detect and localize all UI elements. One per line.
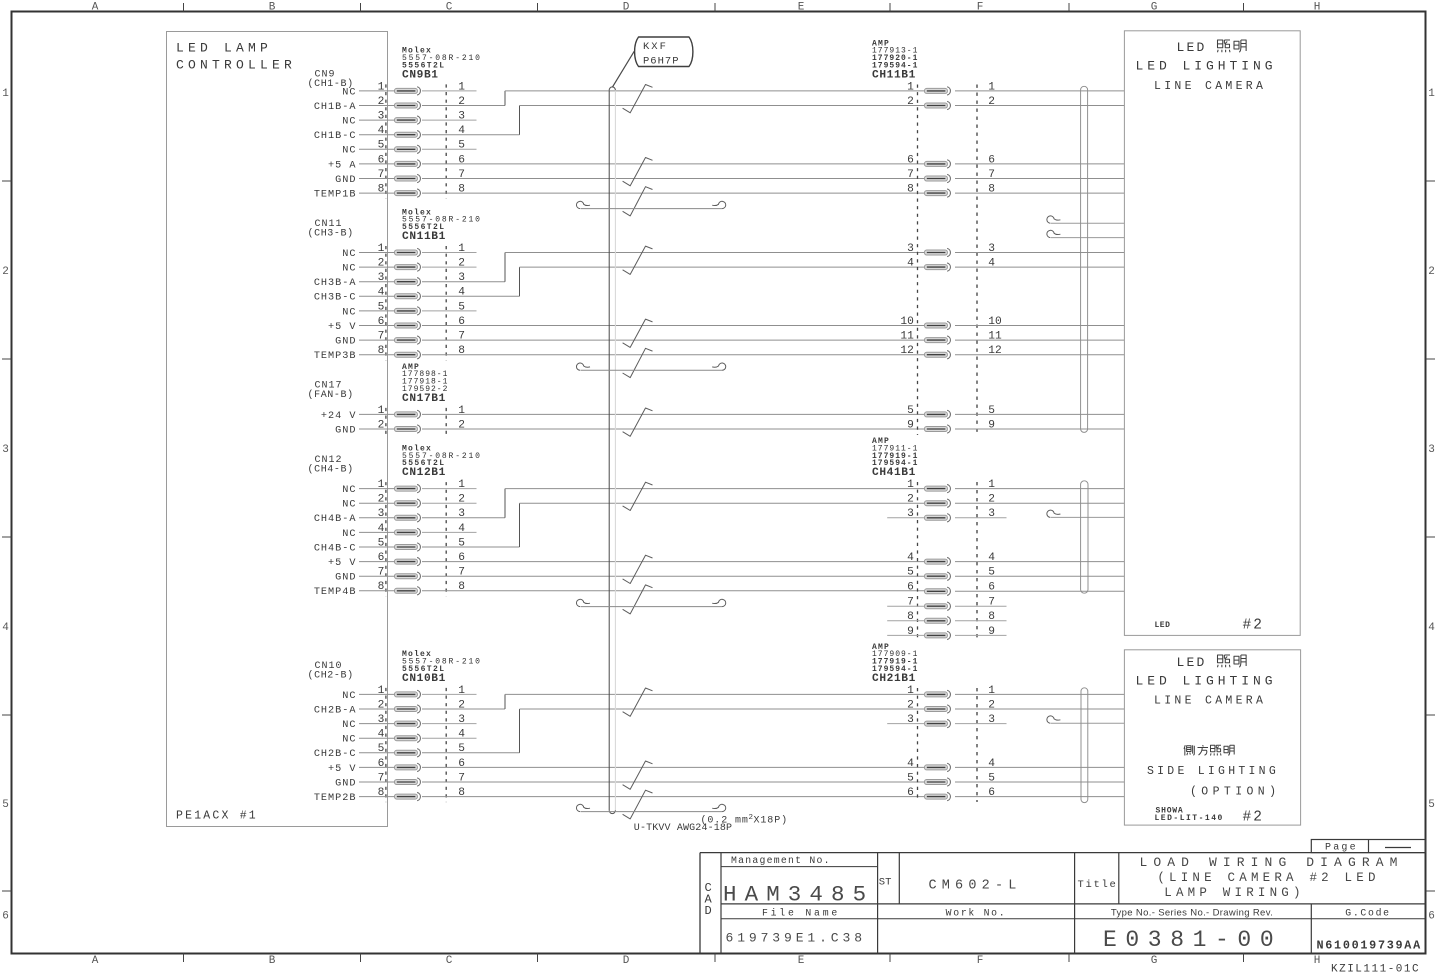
svg-text:+5 A: +5 A	[328, 160, 356, 171]
svg-text:6: 6	[988, 154, 995, 166]
svg-text:3: 3	[988, 714, 995, 726]
svg-text:(CH3-B): (CH3-B)	[308, 228, 354, 240]
svg-text:D: D	[623, 955, 630, 967]
svg-text:LINE CAMERA: LINE CAMERA	[1154, 80, 1266, 93]
svg-text:4: 4	[907, 552, 914, 564]
svg-text:11: 11	[900, 331, 914, 343]
svg-text:6: 6	[458, 552, 465, 564]
svg-text:4: 4	[378, 523, 385, 535]
svg-text:10: 10	[900, 316, 914, 328]
svg-text:5: 5	[458, 537, 465, 549]
svg-text:E: E	[798, 2, 805, 14]
svg-text:1: 1	[378, 479, 385, 491]
svg-text:619739E1.C38: 619739E1.C38	[726, 931, 866, 946]
svg-text:6: 6	[378, 552, 385, 564]
svg-text:5: 5	[907, 567, 914, 579]
svg-text:CN10B1: CN10B1	[402, 673, 446, 685]
svg-text:6: 6	[988, 787, 995, 799]
svg-text:3: 3	[988, 508, 995, 520]
svg-text:1: 1	[907, 81, 914, 93]
svg-text:CN17B1: CN17B1	[402, 393, 446, 405]
svg-text:NC: NC	[342, 249, 356, 260]
svg-text:2: 2	[378, 96, 385, 108]
svg-text:5: 5	[378, 301, 385, 313]
svg-text:9: 9	[988, 419, 995, 431]
svg-text:8: 8	[378, 787, 385, 799]
svg-text:TEMP4B: TEMP4B	[314, 587, 357, 598]
svg-text:2: 2	[988, 494, 995, 506]
svg-text:3: 3	[458, 272, 465, 284]
svg-text:(OPTION): (OPTION)	[1190, 785, 1280, 798]
svg-text:8: 8	[458, 581, 465, 593]
svg-text:2: 2	[1428, 266, 1435, 278]
svg-text:5: 5	[458, 301, 465, 313]
svg-text:(FAN-B): (FAN-B)	[308, 389, 354, 401]
svg-text:2: 2	[907, 494, 914, 506]
svg-text:U-TKVV AWG24-18P: U-TKVV AWG24-18P	[634, 823, 732, 834]
svg-text:NC: NC	[342, 307, 356, 318]
svg-text:+5 V: +5 V	[328, 764, 356, 775]
svg-text:A: A	[92, 955, 99, 967]
svg-text:G: G	[1151, 2, 1158, 14]
svg-text:NC: NC	[342, 485, 356, 496]
svg-text:LED LIGHTING: LED LIGHTING	[1136, 58, 1277, 73]
svg-text:PE1ACX #1: PE1ACX #1	[176, 810, 258, 823]
svg-text:8: 8	[458, 184, 465, 196]
svg-text:6: 6	[458, 316, 465, 328]
svg-text:1: 1	[458, 685, 465, 697]
svg-text:6: 6	[907, 787, 914, 799]
svg-text:7: 7	[458, 169, 465, 181]
svg-text:2: 2	[988, 96, 995, 108]
svg-text:6: 6	[2, 911, 9, 923]
svg-text:7: 7	[378, 772, 385, 784]
svg-text:(CH4-B): (CH4-B)	[308, 463, 354, 475]
svg-text:5: 5	[988, 405, 995, 417]
svg-text:8: 8	[458, 345, 465, 357]
svg-text:4: 4	[1428, 622, 1435, 634]
svg-text:2: 2	[458, 494, 465, 506]
svg-text:4: 4	[378, 287, 385, 299]
svg-text:3: 3	[1428, 444, 1435, 456]
svg-text:B: B	[269, 2, 276, 14]
svg-text:9: 9	[907, 626, 914, 638]
svg-text:LED: LED	[1155, 621, 1171, 630]
svg-text:1: 1	[907, 685, 914, 697]
svg-text:G: G	[1151, 955, 1158, 967]
svg-text:NC: NC	[342, 529, 356, 540]
svg-text:LED LIGHTING: LED LIGHTING	[1136, 673, 1277, 688]
svg-text:SIDE LIGHTING: SIDE LIGHTING	[1147, 765, 1279, 778]
svg-text:NC: NC	[342, 500, 356, 511]
svg-text:3: 3	[458, 508, 465, 520]
svg-text:LED: LED	[1177, 40, 1207, 55]
svg-text:N610019739AA: N610019739AA	[1317, 938, 1422, 952]
svg-text:GND: GND	[335, 337, 356, 348]
svg-text:2: 2	[458, 258, 465, 270]
svg-text:1: 1	[907, 479, 914, 491]
svg-text:5: 5	[458, 140, 465, 152]
svg-text:Work No.: Work No.	[946, 908, 1007, 919]
svg-text:3: 3	[458, 714, 465, 726]
svg-text:11: 11	[988, 331, 1002, 343]
svg-text:TEMP1B: TEMP1B	[314, 190, 357, 201]
svg-text:6: 6	[988, 582, 995, 594]
svg-text:5: 5	[1428, 799, 1435, 811]
svg-text:+24 V: +24 V	[321, 411, 357, 422]
svg-text:B: B	[269, 955, 276, 967]
svg-text:CH2B-C: CH2B-C	[314, 749, 357, 760]
svg-text:4: 4	[458, 523, 465, 535]
svg-text:2: 2	[378, 494, 385, 506]
svg-text:6: 6	[907, 154, 914, 166]
svg-text:4: 4	[378, 729, 385, 741]
svg-text:5: 5	[907, 772, 914, 784]
svg-text:2: 2	[988, 699, 995, 711]
svg-text:F: F	[977, 2, 984, 14]
svg-text:4: 4	[458, 125, 465, 137]
svg-text:LINE CAMERA: LINE CAMERA	[1154, 694, 1266, 707]
svg-text:ST: ST	[879, 877, 892, 889]
svg-text:C: C	[446, 955, 453, 967]
svg-text:7: 7	[378, 169, 385, 181]
svg-text:TEMP3B: TEMP3B	[314, 351, 357, 362]
svg-text:3: 3	[907, 714, 914, 726]
svg-text:1: 1	[1428, 88, 1435, 100]
svg-text:3: 3	[378, 508, 385, 520]
svg-text:CN9B1: CN9B1	[402, 69, 439, 81]
svg-text:1: 1	[458, 405, 465, 417]
svg-text:8: 8	[907, 611, 914, 623]
svg-text:File Name: File Name	[762, 908, 840, 919]
svg-text:6: 6	[458, 758, 465, 770]
svg-text:Page: Page	[1325, 843, 1358, 854]
svg-text:9: 9	[907, 419, 914, 431]
svg-text:NC: NC	[342, 720, 356, 731]
svg-text:3: 3	[988, 243, 995, 255]
svg-text:3: 3	[907, 508, 914, 520]
svg-text:X18P): X18P)	[754, 815, 789, 827]
svg-text:1: 1	[988, 685, 995, 697]
svg-text:8: 8	[988, 184, 995, 196]
svg-text:D: D	[623, 2, 630, 14]
svg-text:2: 2	[749, 814, 754, 822]
svg-text:NC: NC	[342, 117, 356, 128]
svg-text:5: 5	[458, 743, 465, 755]
svg-text:4: 4	[2, 622, 9, 634]
svg-text:3: 3	[378, 714, 385, 726]
svg-text:CH1B-A: CH1B-A	[314, 102, 357, 113]
svg-text:4: 4	[458, 287, 465, 299]
svg-text:(CH2-B): (CH2-B)	[308, 669, 354, 681]
svg-text:CH2B-A: CH2B-A	[314, 705, 357, 716]
svg-text:2: 2	[907, 699, 914, 711]
svg-text:KZIL111-01C: KZIL111-01C	[1331, 964, 1420, 974]
svg-text:LAMP WIRING): LAMP WIRING)	[1164, 886, 1304, 900]
svg-text:5: 5	[2, 799, 9, 811]
svg-text:NC: NC	[342, 735, 356, 746]
svg-text:3: 3	[907, 243, 914, 255]
svg-text:1: 1	[378, 81, 385, 93]
svg-text:9: 9	[988, 626, 995, 638]
svg-text:E0381-00: E0381-00	[1103, 927, 1282, 953]
svg-text:CM602-L: CM602-L	[928, 878, 1021, 893]
svg-text:4: 4	[458, 729, 465, 741]
svg-text:6: 6	[458, 154, 465, 166]
svg-text:4: 4	[378, 125, 385, 137]
svg-text:6: 6	[378, 758, 385, 770]
svg-text:3: 3	[378, 272, 385, 284]
svg-text:4: 4	[988, 552, 995, 564]
svg-text:1: 1	[458, 243, 465, 255]
svg-text:2: 2	[378, 258, 385, 270]
svg-text:#2: #2	[1243, 618, 1264, 634]
svg-text:D: D	[705, 904, 712, 918]
svg-text:1: 1	[378, 685, 385, 697]
svg-text:CH11B1: CH11B1	[872, 69, 916, 81]
svg-text:7: 7	[378, 331, 385, 343]
svg-text:GND: GND	[335, 425, 356, 436]
svg-text:1: 1	[988, 479, 995, 491]
svg-text:P6H7P: P6H7P	[643, 56, 680, 68]
svg-text:F: F	[977, 955, 984, 967]
svg-text:CONTROLLER: CONTROLLER	[176, 58, 296, 73]
svg-text:6: 6	[378, 154, 385, 166]
svg-text:E: E	[798, 955, 805, 967]
svg-text:2: 2	[458, 419, 465, 431]
svg-text:(LINE CAMERA #2 LED: (LINE CAMERA #2 LED	[1157, 871, 1379, 885]
svg-text:C: C	[446, 2, 453, 14]
svg-text:H: H	[1314, 955, 1321, 967]
svg-text:3: 3	[2, 444, 9, 456]
svg-text:2: 2	[2, 266, 9, 278]
svg-text:4: 4	[907, 258, 914, 270]
svg-text:8: 8	[378, 581, 385, 593]
svg-text:7: 7	[458, 567, 465, 579]
svg-text:3: 3	[378, 111, 385, 123]
svg-text:#2: #2	[1243, 810, 1264, 826]
svg-text:CH3B-A: CH3B-A	[314, 278, 357, 289]
svg-text:GND: GND	[335, 175, 356, 186]
svg-text:Title: Title	[1078, 879, 1118, 891]
svg-text:10: 10	[988, 316, 1002, 328]
svg-text:CH41B1: CH41B1	[872, 467, 916, 479]
svg-text:5: 5	[988, 567, 995, 579]
svg-text:2: 2	[907, 96, 914, 108]
svg-text:4: 4	[988, 258, 995, 270]
svg-text:7: 7	[378, 567, 385, 579]
svg-text:1: 1	[378, 405, 385, 417]
svg-text:Type No.- Series No.- Drawing: Type No.- Series No.- Drawing Rev.	[1111, 907, 1273, 918]
svg-text:7: 7	[988, 597, 995, 609]
svg-text:8: 8	[988, 611, 995, 623]
svg-text:CN12B1: CN12B1	[402, 467, 446, 479]
svg-text:12: 12	[900, 345, 913, 357]
svg-text:7: 7	[458, 331, 465, 343]
svg-text:4: 4	[907, 758, 914, 770]
svg-text:1: 1	[988, 81, 995, 93]
svg-text:8: 8	[458, 787, 465, 799]
svg-text:GND: GND	[335, 573, 356, 584]
svg-text:5: 5	[907, 405, 914, 417]
svg-text:G.Code: G.Code	[1345, 908, 1390, 919]
svg-text:12: 12	[988, 345, 1001, 357]
svg-text:2: 2	[378, 699, 385, 711]
svg-text:A: A	[92, 2, 99, 14]
svg-text:7: 7	[458, 772, 465, 784]
svg-text:CN11B1: CN11B1	[402, 231, 446, 243]
svg-text:2: 2	[458, 699, 465, 711]
svg-text:6: 6	[1428, 911, 1435, 923]
svg-text:1: 1	[2, 88, 9, 100]
svg-text:LED: LED	[1177, 655, 1207, 670]
svg-text:1: 1	[458, 81, 465, 93]
svg-text:8: 8	[378, 345, 385, 357]
svg-text:+5 V: +5 V	[328, 322, 356, 333]
svg-text:3: 3	[458, 111, 465, 123]
svg-text:CH4B-A: CH4B-A	[314, 514, 357, 525]
svg-text:6: 6	[378, 316, 385, 328]
svg-text:5: 5	[378, 537, 385, 549]
svg-text:CH3B-C: CH3B-C	[314, 293, 357, 304]
svg-text:GND: GND	[335, 778, 356, 789]
svg-text:5: 5	[988, 772, 995, 784]
svg-text:KXF: KXF	[643, 41, 668, 53]
svg-text:5: 5	[378, 743, 385, 755]
svg-text:7: 7	[907, 169, 914, 181]
svg-text:5: 5	[378, 140, 385, 152]
svg-text:H: H	[1314, 2, 1321, 14]
svg-text:Management No.: Management No.	[731, 855, 831, 866]
svg-text:+5 V: +5 V	[328, 558, 356, 569]
svg-text:NC: NC	[342, 146, 356, 157]
svg-text:NC: NC	[342, 691, 356, 702]
svg-text:LOAD WIRING DIAGRAM: LOAD WIRING DIAGRAM	[1139, 855, 1403, 870]
svg-text:TEMP2B: TEMP2B	[314, 793, 357, 804]
svg-text:LED LAMP: LED LAMP	[176, 41, 272, 56]
svg-text:1: 1	[458, 479, 465, 491]
svg-text:7: 7	[988, 169, 995, 181]
svg-text:NC: NC	[342, 264, 356, 275]
svg-text:2: 2	[458, 96, 465, 108]
svg-text:7: 7	[907, 597, 914, 609]
svg-text:CH4B-C: CH4B-C	[314, 543, 357, 554]
svg-text:1: 1	[378, 243, 385, 255]
svg-text:6: 6	[907, 582, 914, 594]
svg-text:NC: NC	[342, 87, 356, 98]
svg-text:LED-LIT-140: LED-LIT-140	[1155, 814, 1224, 823]
svg-text:2: 2	[378, 419, 385, 431]
svg-text:8: 8	[378, 184, 385, 196]
svg-text:CH21B1: CH21B1	[872, 673, 916, 685]
svg-text:CH1B-C: CH1B-C	[314, 131, 357, 142]
svg-text:4: 4	[988, 758, 995, 770]
svg-text:8: 8	[907, 184, 914, 196]
